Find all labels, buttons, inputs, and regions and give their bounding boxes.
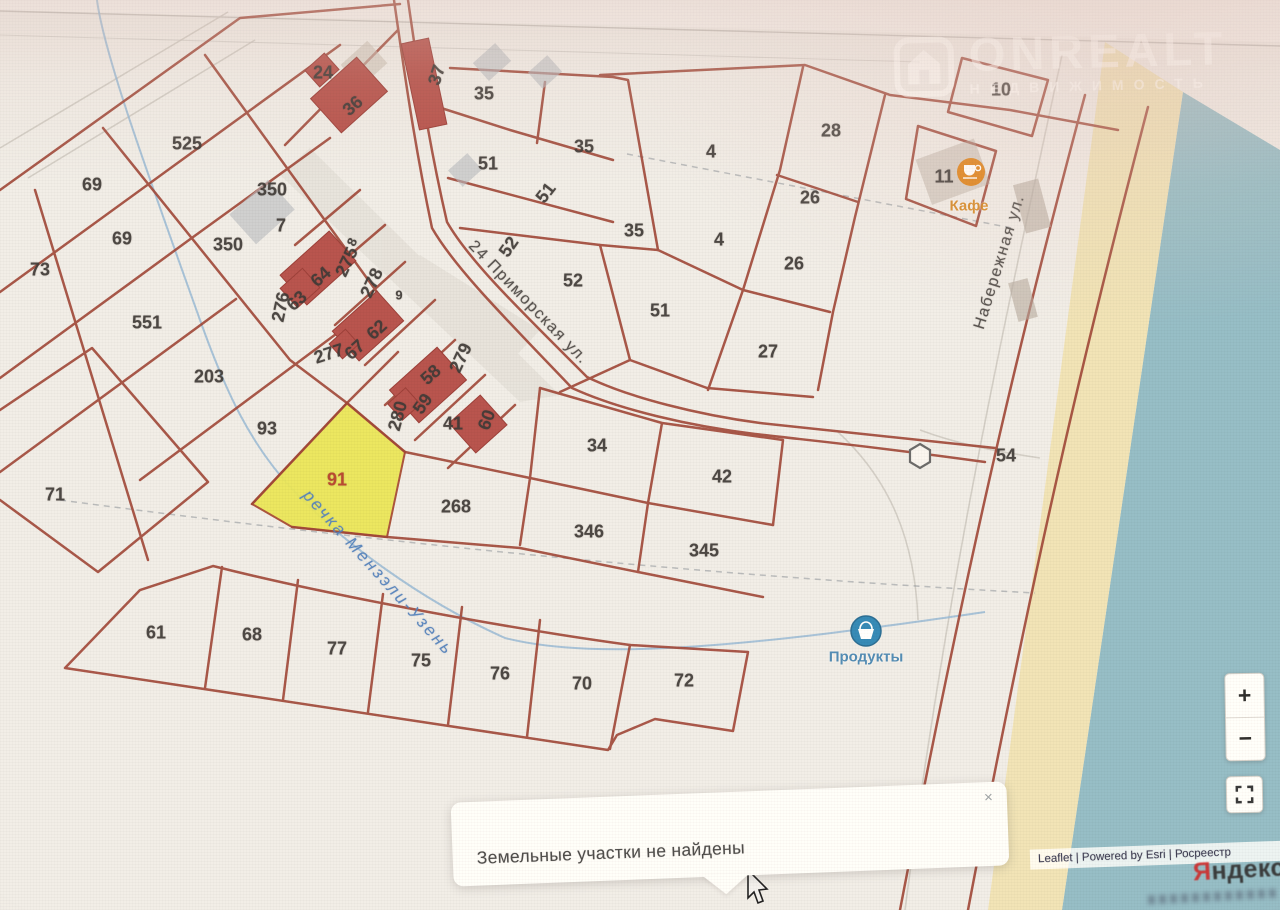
- top-band: [0, 0, 1280, 42]
- fullscreen-icon: [1235, 785, 1254, 804]
- popup-close-icon[interactable]: ×: [984, 790, 993, 805]
- parcel-boundaries: [0, 0, 1148, 910]
- zoom-in-button[interactable]: +: [1225, 674, 1264, 718]
- groceries-marker[interactable]: [851, 616, 881, 646]
- yandex-logo-rest: ндекс: [1211, 854, 1280, 886]
- screen-edge-line2: [0, 35, 920, 62]
- popup-message: Земельные участки не найдены: [476, 837, 745, 868]
- fullscreen-button[interactable]: [1226, 776, 1264, 814]
- yandex-logo: Яндекс: [1192, 854, 1280, 888]
- popup-tail: [702, 873, 751, 895]
- dashed-boundaries: [60, 154, 1035, 593]
- yandex-logo-ya: Я: [1192, 857, 1212, 886]
- hexagon-icon: [910, 444, 930, 468]
- zoom-out-button[interactable]: −: [1226, 717, 1265, 760]
- map-screenshot: 2436373551355152523542826264512710115452…: [0, 0, 1280, 910]
- cafe-marker[interactable]: [957, 158, 985, 186]
- cadastral-map-canvas[interactable]: [0, 0, 1280, 910]
- zoom-control: + −: [1224, 673, 1266, 762]
